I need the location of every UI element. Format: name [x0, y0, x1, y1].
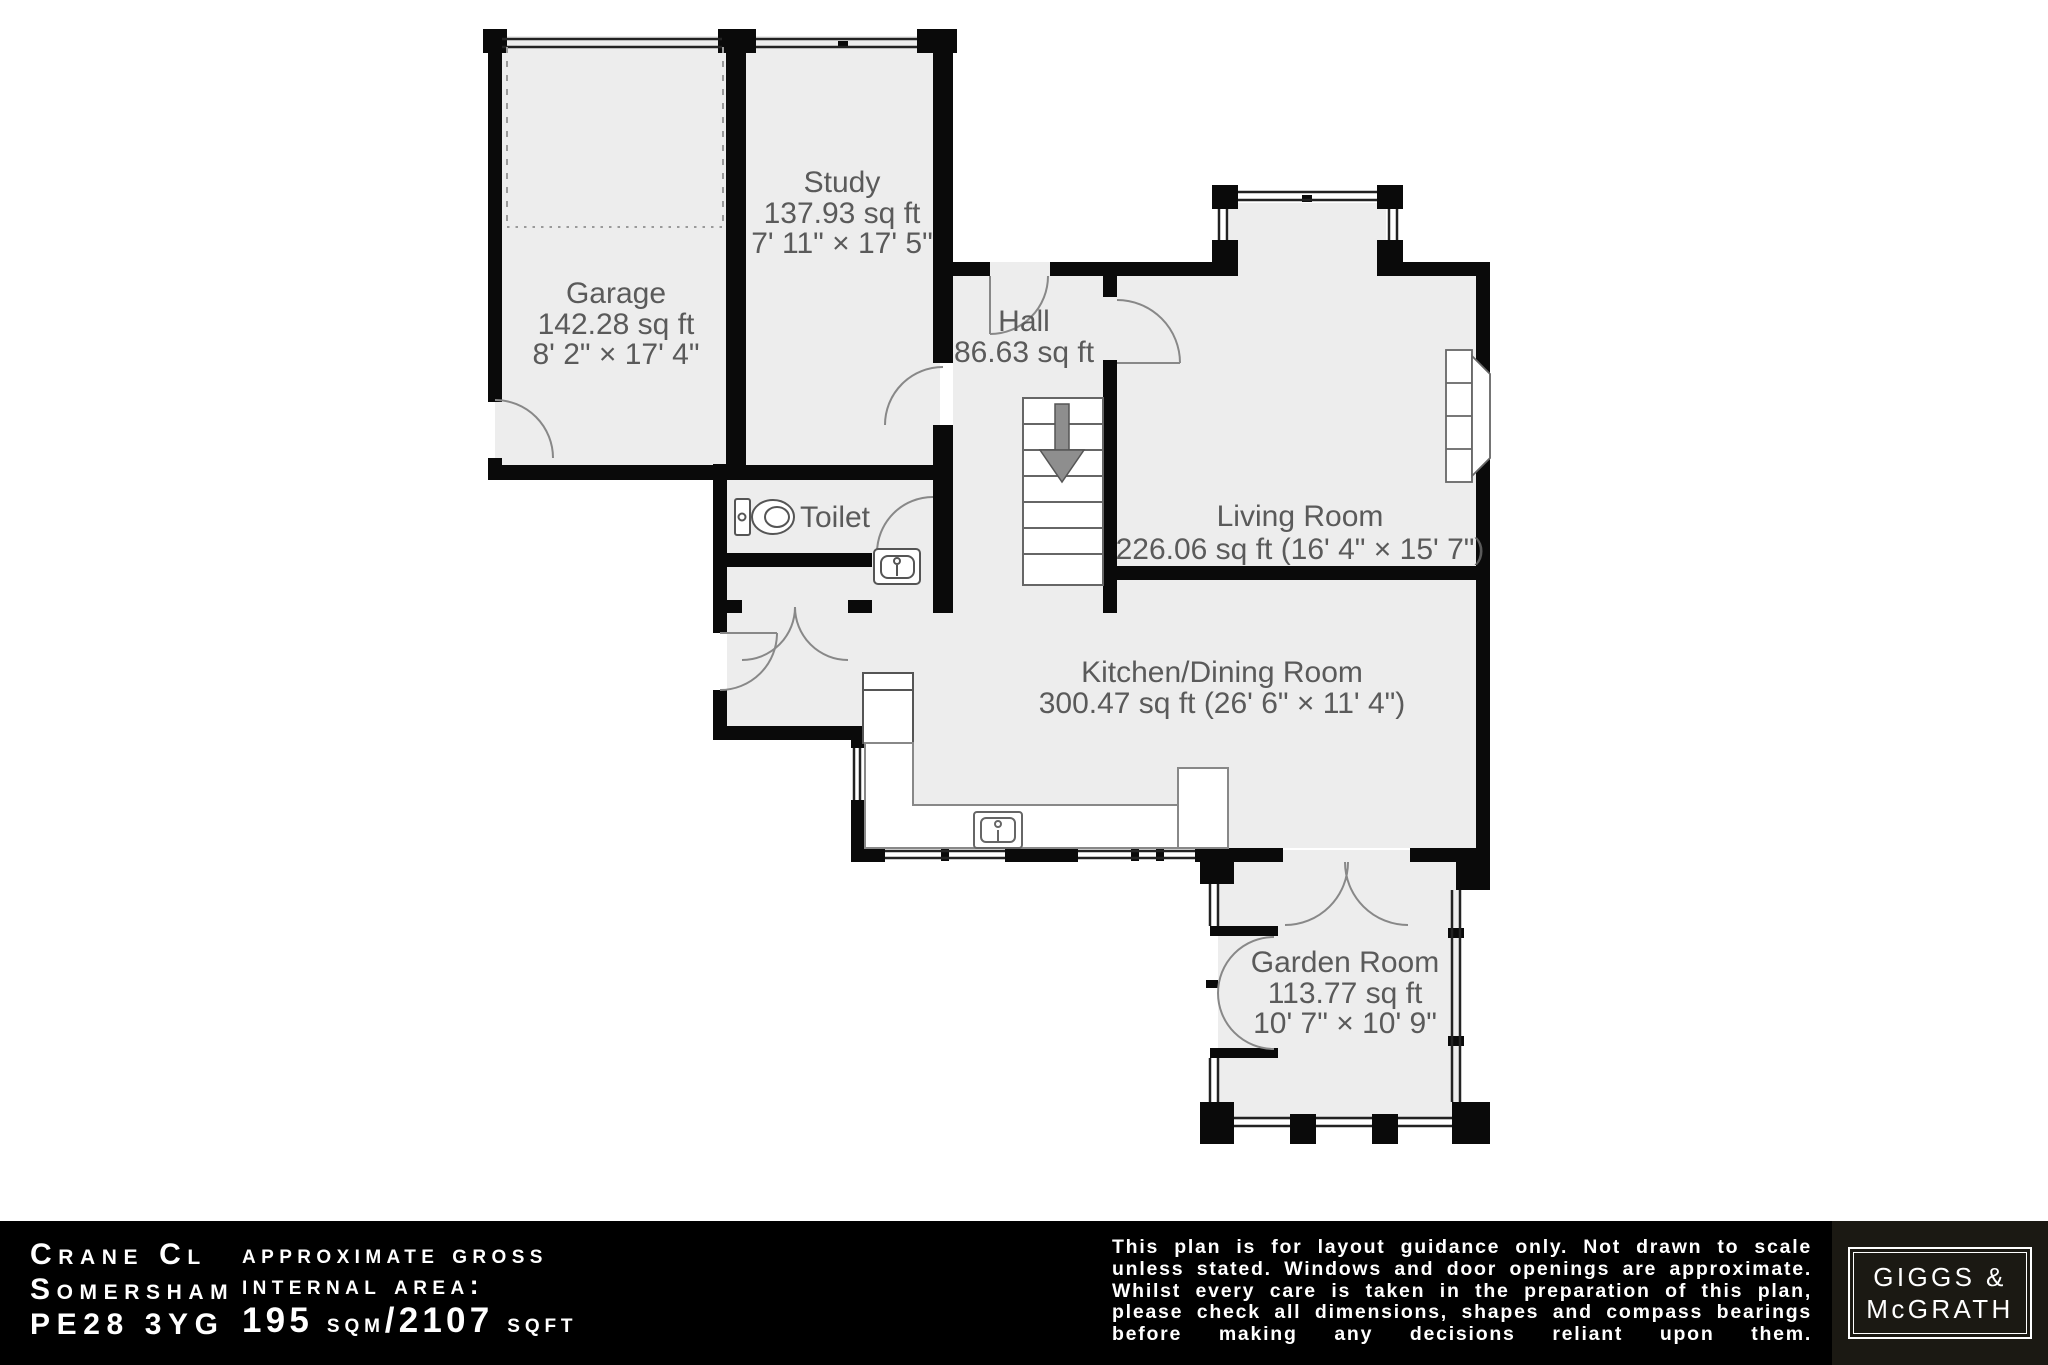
kitchen-island: [1178, 768, 1228, 848]
area-label-line-1: approximate gross: [242, 1239, 577, 1270]
hall-label-area: 86.63 sq ft: [954, 336, 1095, 369]
logo-line-2: McGRATH: [1866, 1293, 2013, 1325]
garage-label-name: Garage: [566, 277, 666, 310]
garage-label-area: 142.28 sq ft: [538, 308, 695, 341]
area-sqft-unit: sqft: [507, 1308, 577, 1338]
garden-left-window-1: [1210, 884, 1218, 926]
area-sqm-number: 195: [242, 1301, 327, 1340]
address-line-1: Crane Cl: [30, 1237, 234, 1272]
kitchen-label-area: 300.47 sq ft (26' 6" × 11' 4"): [1039, 687, 1406, 720]
footer: Crane Cl Somersham PE28 3YG approximate …: [0, 1221, 2048, 1365]
area-sqm-unit: sqm: [327, 1308, 385, 1338]
area-sqft-number: /2107: [385, 1301, 508, 1340]
floor-plan: Garage 142.28 sq ft 8' 2" × 17' 4" Study…: [0, 0, 2048, 1221]
living-room-label-area: 226.06 sq ft (16' 4" × 15' 7"): [1116, 533, 1485, 566]
kitchen-label-name: Kitchen/Dining Room: [1081, 656, 1363, 689]
garden-room-label-dims: 10' 7" × 10' 9": [1253, 1007, 1437, 1040]
garden-bottom-window-1: [1234, 1118, 1290, 1126]
bay-window-left: [1219, 209, 1227, 240]
gross-internal-area: approximate gross internal area: 195 sqm…: [242, 1239, 577, 1342]
garden-bottom-window-3: [1398, 1118, 1452, 1126]
disclaimer-text: This plan is for layout guidance only. N…: [1112, 1237, 1812, 1353]
toilet-icon: [735, 499, 794, 535]
garden-bottom-window-2: [1316, 1118, 1372, 1126]
garden-room-label-area: 113.77 sq ft: [1268, 977, 1423, 1010]
study-label-area: 137.93 sq ft: [764, 197, 921, 230]
area-value: 195 sqm/2107 sqft: [242, 1302, 577, 1342]
garden-left-window-2: [1210, 1058, 1218, 1102]
address-line-2: Somersham: [30, 1272, 234, 1307]
staircase: [1023, 398, 1103, 585]
logo-line-1: GIGGS &: [1866, 1261, 2013, 1293]
living-room-label-name: Living Room: [1217, 500, 1384, 533]
study-label-name: Study: [804, 166, 881, 199]
garage-label-dims: 8' 2" × 17' 4": [532, 338, 699, 371]
area-label-line-2: internal area:: [242, 1270, 577, 1301]
study-label-dims: 7' 11" × 17' 5": [751, 227, 933, 260]
logo-border-box: GIGGS & McGRATH: [1848, 1247, 2031, 1339]
fireplace-icon: [1446, 350, 1490, 482]
toilet-lobby-floor: [727, 479, 933, 613]
property-address: Crane Cl Somersham PE28 3YG: [30, 1237, 234, 1342]
basin-icon: [874, 549, 920, 584]
kitchen-left-window: [854, 748, 860, 800]
bay-window-right: [1389, 209, 1397, 240]
kitchen-appliance: [863, 673, 913, 743]
hall-label-name: Hall: [998, 305, 1050, 338]
garden-room-label-name: Garden Room: [1251, 946, 1439, 979]
toilet-label: Toilet: [800, 501, 871, 534]
kitchen-sink-icon: [974, 812, 1022, 848]
floorplan-page: Garage 142.28 sq ft 8' 2" × 17' 4" Study…: [0, 0, 2048, 1365]
address-line-3: PE28 3YG: [30, 1307, 234, 1342]
bay-window-floor: [1229, 203, 1386, 278]
agency-logo: GIGGS & McGRATH: [1832, 1221, 2048, 1365]
